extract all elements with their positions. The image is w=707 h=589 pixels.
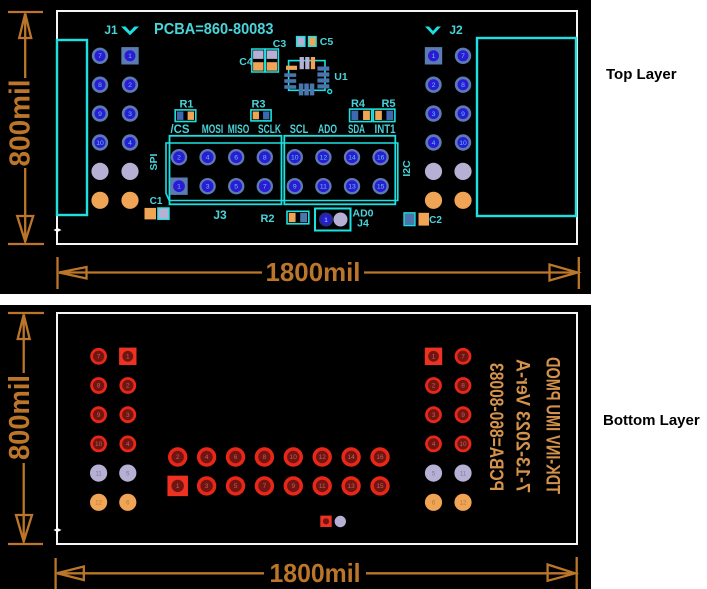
- svg-text:1: 1: [126, 354, 130, 361]
- svg-text:1: 1: [432, 354, 436, 361]
- svg-text:MISO: MISO: [228, 124, 250, 136]
- svg-text:12: 12: [320, 155, 328, 162]
- svg-text:10: 10: [95, 441, 103, 448]
- svg-text:11: 11: [319, 483, 326, 490]
- svg-text:2: 2: [177, 155, 181, 162]
- svg-text:SCL: SCL: [290, 124, 309, 136]
- svg-text:15: 15: [376, 483, 384, 490]
- svg-text:9: 9: [461, 111, 465, 118]
- svg-text:15: 15: [377, 184, 385, 191]
- svg-text:PCBA=860-80083: PCBA=860-80083: [154, 21, 274, 38]
- svg-text:J3: J3: [213, 208, 227, 222]
- svg-text:2: 2: [432, 383, 436, 390]
- svg-text:1800mil: 1800mil: [270, 558, 361, 588]
- svg-text:2: 2: [432, 82, 436, 89]
- svg-text:J4: J4: [357, 218, 369, 230]
- svg-text:10: 10: [290, 454, 298, 461]
- svg-text:4: 4: [432, 140, 436, 147]
- svg-text:3: 3: [128, 111, 132, 118]
- svg-text:4: 4: [206, 155, 210, 162]
- svg-text:SDA: SDA: [348, 124, 365, 136]
- svg-text:11: 11: [95, 471, 102, 477]
- svg-text:13: 13: [347, 483, 355, 490]
- svg-text:9: 9: [98, 111, 102, 118]
- svg-text:4: 4: [128, 140, 132, 147]
- svg-text:SPI: SPI: [148, 153, 160, 170]
- svg-text:8: 8: [461, 82, 465, 89]
- svg-text:U1: U1: [334, 71, 348, 83]
- svg-text:10: 10: [459, 441, 467, 448]
- svg-text:10: 10: [459, 140, 467, 147]
- svg-text:12: 12: [319, 454, 327, 461]
- svg-text:R1: R1: [179, 99, 193, 111]
- svg-text:800mil: 800mil: [4, 375, 36, 460]
- svg-text:14: 14: [348, 155, 356, 162]
- svg-text:MOSI: MOSI: [202, 124, 224, 136]
- svg-text:11: 11: [460, 471, 467, 477]
- svg-text:C1: C1: [150, 196, 163, 207]
- svg-text:8: 8: [98, 82, 102, 89]
- svg-text:16: 16: [376, 454, 384, 461]
- svg-text:5: 5: [234, 483, 238, 490]
- svg-text:3: 3: [432, 111, 436, 118]
- svg-text:3: 3: [205, 483, 209, 490]
- svg-text:7: 7: [263, 184, 267, 191]
- svg-text:4: 4: [126, 441, 130, 448]
- svg-text:I2C: I2C: [401, 160, 413, 177]
- svg-text:INT1: INT1: [375, 124, 397, 136]
- svg-text:12: 12: [95, 501, 102, 507]
- svg-text:J1: J1: [104, 23, 118, 37]
- svg-text:C4: C4: [239, 56, 253, 68]
- svg-text:R2: R2: [260, 213, 274, 225]
- svg-text:3: 3: [432, 412, 436, 419]
- svg-text:12: 12: [460, 501, 467, 507]
- svg-text:11: 11: [320, 184, 327, 191]
- svg-text:4: 4: [432, 441, 436, 448]
- svg-text:ADO: ADO: [318, 124, 337, 136]
- svg-text:6: 6: [234, 155, 238, 162]
- svg-text:13: 13: [348, 184, 356, 191]
- svg-text:C5: C5: [320, 36, 334, 48]
- svg-text:7: 7: [461, 53, 465, 60]
- svg-text:3: 3: [206, 184, 210, 191]
- svg-text:7: 7: [97, 354, 101, 361]
- svg-text:1: 1: [432, 53, 436, 60]
- svg-text:PCBA=860-80083: PCBA=860-80083: [485, 363, 506, 491]
- svg-text:1: 1: [128, 53, 132, 60]
- svg-text:7-13-2023 Ver-A: 7-13-2023 Ver-A: [512, 359, 533, 493]
- svg-text:2: 2: [126, 383, 130, 390]
- svg-text:16: 16: [377, 155, 385, 162]
- svg-text:C2: C2: [429, 215, 442, 226]
- svg-text:10: 10: [96, 140, 104, 147]
- svg-text:9: 9: [291, 483, 295, 490]
- svg-text:TDK-INV IMU PMOD: TDK-INV IMU PMOD: [542, 357, 563, 494]
- svg-text:R3: R3: [251, 99, 265, 111]
- svg-text:7: 7: [263, 483, 267, 490]
- svg-text:8: 8: [263, 155, 267, 162]
- svg-text:/CS: /CS: [171, 124, 190, 136]
- svg-text:1: 1: [176, 483, 180, 490]
- svg-text:2: 2: [176, 454, 180, 461]
- svg-text:10: 10: [291, 155, 299, 162]
- svg-text:1800mil: 1800mil: [266, 257, 361, 287]
- svg-text:6: 6: [234, 454, 238, 461]
- svg-text:8: 8: [97, 383, 101, 390]
- svg-text:7: 7: [461, 354, 465, 361]
- svg-text:9: 9: [461, 412, 465, 419]
- svg-text:3: 3: [126, 412, 130, 419]
- svg-text:5: 5: [234, 184, 238, 191]
- svg-text:R5: R5: [381, 98, 395, 110]
- svg-text:C3: C3: [273, 38, 287, 50]
- svg-text:4: 4: [205, 454, 209, 461]
- svg-text:9: 9: [293, 184, 297, 191]
- svg-text:9: 9: [97, 412, 101, 419]
- svg-text:1: 1: [177, 184, 181, 191]
- svg-text:2: 2: [128, 82, 132, 89]
- svg-text:J2: J2: [449, 23, 463, 37]
- svg-text:14: 14: [347, 454, 355, 461]
- svg-text:8: 8: [263, 454, 267, 461]
- svg-text:800mil: 800mil: [5, 80, 37, 167]
- svg-text:R4: R4: [351, 98, 366, 110]
- svg-text:SCLK: SCLK: [258, 124, 282, 136]
- svg-text:8: 8: [461, 383, 465, 390]
- svg-text:7: 7: [98, 53, 102, 60]
